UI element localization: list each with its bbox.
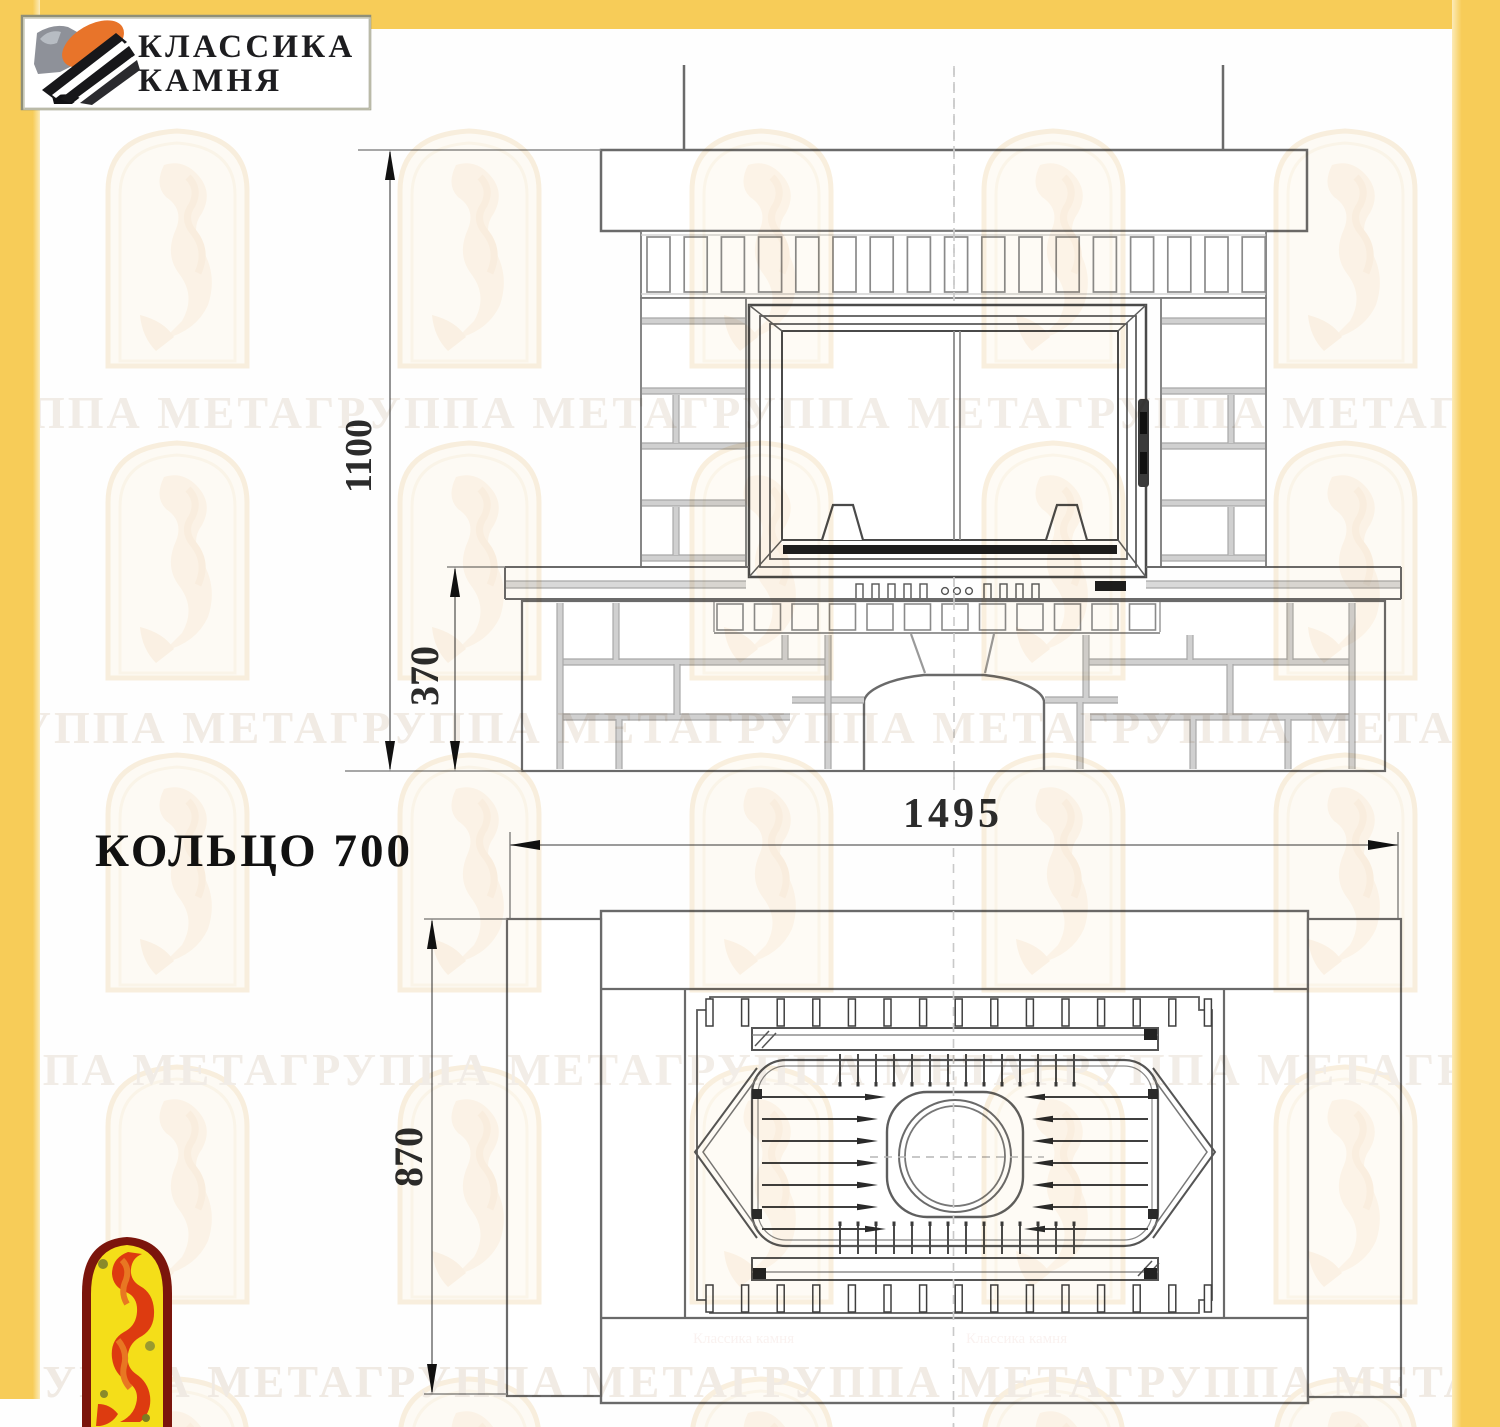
svg-text:КАМНЯ: КАМНЯ (138, 63, 282, 99)
svg-text:КЛАССИКА: КЛАССИКА (138, 29, 355, 65)
svg-text:ГРУППА МЕТАГРУППА МЕТАГРУППА М: ГРУППА МЕТАГРУППА МЕТАГРУППА МЕТАГРУППА … (0, 1356, 1500, 1407)
svg-text:Классика камня: Классика камня (966, 1331, 1067, 1347)
svg-text:ГРУППА МЕТАГРУППА МЕТАГРУППА М: ГРУППА МЕТАГРУППА МЕТАГРУППА МЕТАГРУППА … (0, 702, 1500, 753)
svg-text:ГРУППА МЕТАГРУППА МЕТАГРУППА М: ГРУППА МЕТАГРУППА МЕТАГРУППА МЕТАГРУППА … (0, 387, 1500, 438)
svg-text:ГРУППА МЕТАГРУППА МЕТАГРУППА М: ГРУППА МЕТАГРУППА МЕТАГРУППА МЕТАГРУППА … (0, 1044, 1500, 1095)
svg-text:Классика камня: Классика камня (693, 1331, 794, 1347)
